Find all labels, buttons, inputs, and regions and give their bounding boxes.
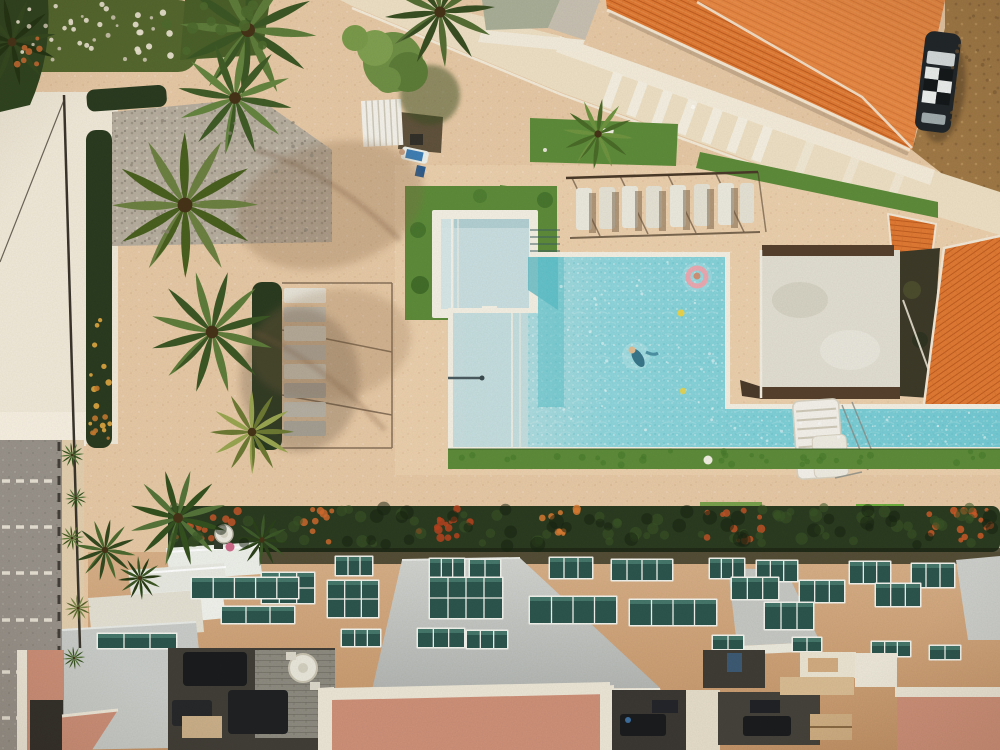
resort-aerial-scene <box>0 0 1000 750</box>
aerial-photo <box>0 0 1000 750</box>
vignette <box>0 0 1000 750</box>
